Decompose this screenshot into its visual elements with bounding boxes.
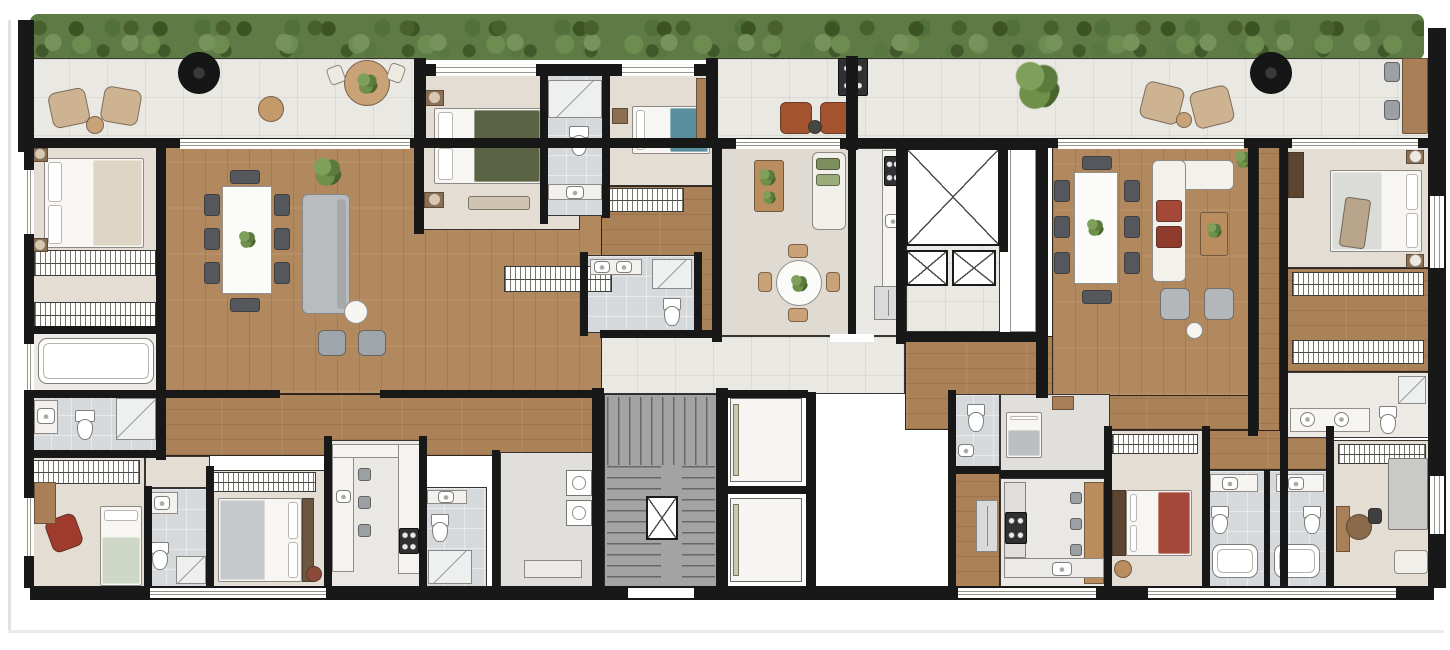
wall-segment [848, 148, 856, 338]
toilet [1378, 406, 1398, 434]
dining-chair [788, 244, 808, 258]
dining-chair [230, 298, 260, 312]
stair-flight [607, 397, 715, 465]
sink-round [1300, 412, 1315, 427]
centerpiece [790, 274, 808, 292]
terrace-right [712, 58, 1432, 146]
wall-segment [896, 138, 1048, 150]
toilet [430, 514, 450, 542]
bar-stool [1070, 544, 1082, 556]
bar-stool [358, 524, 371, 537]
wall-segment [580, 252, 588, 336]
centerpiece [1086, 218, 1104, 236]
armchair [358, 330, 386, 356]
centerpiece [238, 230, 256, 248]
window [622, 64, 694, 76]
sofa-cushion [1156, 200, 1182, 222]
shelf [1052, 396, 1074, 410]
bed-double [218, 498, 302, 582]
headboard [1112, 490, 1126, 556]
elevator-car [730, 398, 802, 482]
closet-hatch [34, 302, 156, 328]
wall-segment [380, 390, 602, 398]
table-plant [356, 72, 378, 94]
dining-chair [788, 308, 808, 322]
wall-segment [846, 56, 858, 150]
toilet [1210, 506, 1230, 534]
window [24, 170, 34, 234]
sink [37, 408, 55, 424]
dining-chair [1054, 216, 1070, 238]
bathtub [38, 338, 154, 384]
shower [652, 259, 692, 289]
wall-segment [896, 148, 906, 344]
bench [1394, 550, 1428, 574]
rug [1388, 458, 1428, 530]
dining-chair [274, 262, 290, 284]
wall-segment [600, 330, 718, 338]
wall-segment [144, 486, 152, 590]
kitchen-island [332, 446, 354, 572]
pouf [258, 96, 284, 122]
tall-shaft [1010, 148, 1036, 332]
dining-chair [1124, 216, 1140, 238]
wall-segment [724, 486, 808, 494]
wall-segment [1326, 426, 1334, 590]
wall-segment [30, 450, 160, 458]
table-lamp [1409, 254, 1422, 267]
door-gap [830, 334, 874, 342]
stair-flight [682, 466, 715, 586]
toilet [966, 404, 986, 432]
dining-chair [758, 272, 772, 292]
bedroom-2-left-nook [145, 456, 210, 488]
toilet [74, 410, 96, 440]
nightstand [612, 108, 628, 124]
washer [566, 500, 592, 526]
sink [1222, 477, 1238, 490]
bar-stool [1070, 518, 1082, 530]
wall-segment [160, 390, 280, 398]
wall-segment [896, 332, 1046, 342]
sink [594, 261, 610, 273]
duct-shaft [952, 250, 996, 286]
window [1430, 196, 1444, 268]
cushion [816, 158, 840, 170]
closet-hatch [1292, 272, 1424, 296]
wicker-chair [99, 85, 143, 127]
sofa-cushion [1156, 226, 1182, 248]
sink [616, 261, 632, 273]
dining-chair [204, 194, 220, 216]
sink [154, 496, 170, 510]
sink-round [1334, 412, 1349, 427]
vase [808, 120, 822, 134]
window [436, 64, 536, 76]
side-table [86, 116, 104, 134]
bathtub [1212, 544, 1258, 578]
wall-segment [419, 436, 427, 588]
closet-hatch [32, 460, 140, 484]
stove [1005, 512, 1027, 544]
wall-segment [156, 146, 166, 460]
sink [1288, 477, 1304, 490]
sofa [302, 194, 350, 314]
shower [548, 80, 602, 118]
wall-segment [1000, 470, 1110, 478]
table-decor [758, 168, 776, 186]
closet-hatch [606, 188, 684, 212]
table-decor [762, 190, 776, 204]
closet-hatch [34, 250, 156, 276]
shower [176, 556, 206, 584]
bed-single [100, 506, 142, 586]
window [1430, 476, 1444, 534]
terrace-desk [1402, 58, 1428, 134]
table-lamp [34, 239, 46, 251]
dining-chair [1124, 180, 1140, 202]
wall-segment [30, 390, 160, 398]
dining-chair [1054, 252, 1070, 274]
toilet [1302, 506, 1322, 534]
wall-segment [712, 146, 722, 342]
window [150, 588, 326, 598]
bed-double [44, 158, 144, 248]
table-decor [1206, 222, 1222, 238]
closet-hatch [1112, 434, 1198, 454]
wall-segment [602, 72, 610, 218]
wall-segment [18, 20, 34, 152]
table-lamp [1409, 150, 1422, 163]
window [1058, 139, 1244, 149]
kitchen-sink [1052, 562, 1072, 576]
duct-shaft [906, 250, 948, 286]
wall-segment [1000, 148, 1008, 252]
window [1292, 139, 1418, 149]
side-table [1176, 112, 1192, 128]
window [1148, 588, 1396, 598]
desk-chair [1384, 62, 1400, 82]
wall-segment [30, 326, 160, 334]
cushion [816, 174, 840, 186]
desk [34, 482, 56, 524]
terrace-plant [1014, 58, 1060, 110]
plant [312, 156, 342, 186]
window [24, 344, 34, 390]
kitchen-sink [336, 490, 351, 503]
table-lamp [34, 148, 46, 160]
closet-hatch [212, 472, 316, 492]
fire-bowl [1250, 52, 1292, 94]
wall-segment [952, 466, 1000, 474]
wall-segment [706, 58, 718, 148]
dining-chair [274, 228, 290, 250]
wall-segment [1280, 146, 1288, 592]
wall-segment [592, 388, 604, 598]
window [958, 588, 1096, 598]
floor-plan [0, 0, 1450, 650]
wall-segment [694, 252, 702, 336]
planter [306, 566, 322, 582]
window [180, 139, 410, 149]
desk-chair [1384, 100, 1400, 120]
door-gap [628, 588, 694, 598]
sink [438, 491, 454, 503]
fridge [976, 500, 998, 552]
side-table-round [1186, 322, 1203, 339]
sink [958, 444, 974, 457]
shower [428, 550, 472, 584]
bar-stool [358, 468, 371, 481]
toilet [662, 298, 682, 326]
wall-segment [1036, 138, 1048, 398]
dining-chair [826, 272, 840, 292]
window [24, 498, 34, 556]
elevator-shaft [906, 148, 1000, 246]
bed-single [1006, 412, 1042, 458]
table-lamp [428, 193, 441, 206]
armchair [1160, 288, 1190, 320]
washer [566, 470, 592, 496]
wall-segment [206, 466, 214, 588]
fire-bowl [178, 52, 220, 94]
dining-chair [204, 262, 220, 284]
wall-segment [492, 450, 500, 588]
wall-segment [1248, 146, 1258, 436]
wall-segment [414, 66, 424, 234]
wall-segment [1104, 426, 1112, 590]
shower [116, 398, 156, 440]
hall-core [598, 336, 905, 394]
toilet [150, 542, 170, 570]
page-edge-left [8, 20, 11, 632]
stove [399, 528, 419, 554]
window [736, 139, 840, 149]
laundry-counter [524, 560, 582, 578]
sink [566, 186, 584, 199]
side-table-round [344, 300, 368, 324]
bench [468, 196, 530, 210]
wall-segment [724, 390, 808, 398]
dining-chair [230, 170, 260, 184]
bar-stool [358, 496, 371, 509]
chair [1368, 508, 1382, 524]
dining-chair [204, 228, 220, 250]
closet-hatch [1292, 340, 1424, 364]
hedge-strip [30, 14, 1424, 60]
shower [1398, 376, 1426, 404]
table-lamp [428, 91, 441, 104]
cabinet [1288, 152, 1304, 198]
wall-segment [1264, 470, 1270, 588]
side-table-round [1114, 560, 1132, 578]
dining-chair [1082, 290, 1112, 304]
stair-shaft [646, 496, 678, 540]
wall-segment [540, 72, 548, 224]
page-edge-bottom [8, 630, 1444, 633]
bed-double [1126, 490, 1192, 556]
armchair [1204, 288, 1234, 320]
wall-segment [1202, 426, 1210, 592]
elevator-car [730, 498, 802, 582]
dining-chair [274, 194, 290, 216]
dining-chair [1124, 252, 1140, 274]
dining-chair [1054, 180, 1070, 202]
lounge-chair [780, 102, 812, 134]
armchair [318, 330, 346, 356]
kitchen-counter [398, 444, 420, 574]
wall-segment [948, 390, 956, 590]
bar-stool [1070, 492, 1082, 504]
dining-chair [1082, 156, 1112, 170]
wall-segment [324, 436, 332, 588]
